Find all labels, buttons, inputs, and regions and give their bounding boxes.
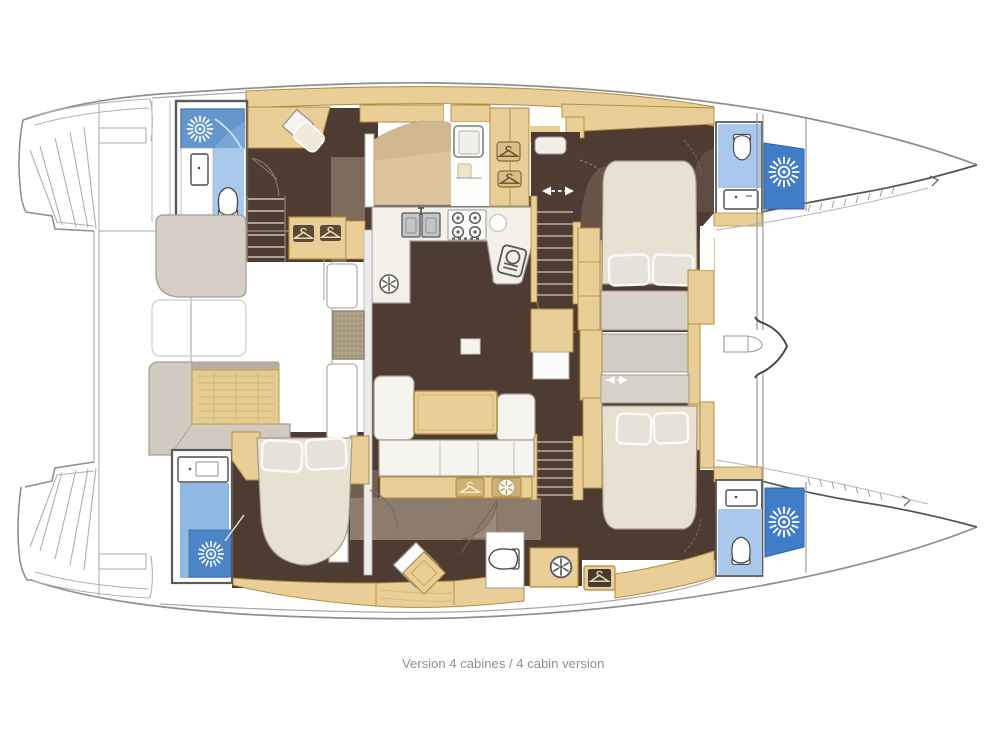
svg-text:Version 4 cabines / 4 cabin ve: Version 4 cabines / 4 cabin version (402, 656, 604, 671)
